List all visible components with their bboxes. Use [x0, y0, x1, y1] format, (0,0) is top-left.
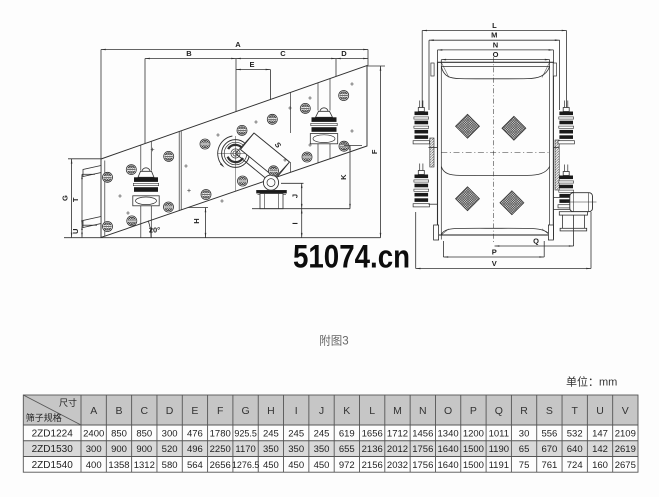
- svg-text:147: 147: [592, 429, 608, 440]
- svg-text:972: 972: [339, 460, 355, 471]
- svg-text:450: 450: [314, 460, 330, 471]
- svg-text:Q: Q: [495, 405, 503, 417]
- svg-text:G: G: [242, 405, 250, 417]
- svg-text:M: M: [491, 31, 497, 40]
- svg-text:350: 350: [314, 444, 330, 455]
- svg-text:925.5: 925.5: [234, 429, 257, 439]
- svg-text:450: 450: [263, 460, 279, 471]
- svg-text:1190: 1190: [489, 444, 509, 455]
- svg-text:V: V: [492, 259, 497, 268]
- svg-text:D: D: [166, 405, 174, 417]
- svg-text:筛子规格: 筛子规格: [26, 412, 62, 423]
- svg-text:J: J: [319, 405, 324, 417]
- svg-text:160: 160: [592, 460, 608, 471]
- svg-text:U: U: [596, 405, 604, 417]
- svg-text:1756: 1756: [412, 460, 433, 471]
- svg-text:850: 850: [111, 429, 127, 440]
- svg-text:F: F: [217, 405, 223, 417]
- svg-text:1276.5: 1276.5: [232, 460, 260, 470]
- svg-text:2136: 2136: [362, 444, 383, 455]
- svg-text:B: B: [186, 49, 192, 58]
- svg-text:900: 900: [111, 444, 127, 455]
- svg-text:1640: 1640: [438, 444, 459, 455]
- svg-text:M: M: [393, 405, 402, 417]
- svg-text:H: H: [267, 405, 275, 417]
- svg-text:1500: 1500: [463, 460, 484, 471]
- svg-text:T: T: [71, 197, 80, 202]
- svg-text:附图3: 附图3: [319, 334, 348, 348]
- svg-text:A: A: [235, 40, 241, 49]
- svg-text:670: 670: [541, 444, 557, 455]
- svg-text:1456: 1456: [412, 429, 433, 440]
- svg-text:单位：mm: 单位：mm: [566, 375, 617, 389]
- svg-text:142: 142: [592, 444, 608, 455]
- svg-text:E: E: [249, 60, 254, 69]
- svg-text:P: P: [492, 248, 497, 257]
- svg-text:245: 245: [288, 429, 304, 440]
- svg-text:C: C: [141, 405, 149, 417]
- svg-text:N: N: [419, 405, 427, 417]
- svg-text:20°: 20°: [149, 226, 160, 235]
- svg-text:51074.cn: 51074.cn: [293, 238, 410, 274]
- svg-text:2109: 2109: [615, 429, 636, 440]
- svg-text:1340: 1340: [438, 429, 459, 440]
- svg-text:75: 75: [519, 460, 530, 471]
- svg-text:1170: 1170: [235, 444, 255, 455]
- svg-text:R: R: [520, 405, 528, 417]
- svg-text:564: 564: [187, 460, 203, 471]
- svg-text:B: B: [115, 405, 122, 417]
- svg-text:245: 245: [314, 429, 330, 440]
- svg-text:1500: 1500: [463, 444, 484, 455]
- svg-text:2032: 2032: [387, 460, 408, 471]
- svg-text:1358: 1358: [108, 460, 129, 471]
- svg-text:245: 245: [263, 429, 279, 440]
- svg-text:2250: 2250: [210, 444, 231, 455]
- svg-text:尺寸: 尺寸: [59, 397, 77, 408]
- svg-text:1712: 1712: [387, 429, 408, 440]
- svg-text:400: 400: [86, 460, 102, 471]
- svg-text:850: 850: [136, 429, 152, 440]
- svg-text:496: 496: [187, 444, 203, 455]
- svg-text:1200: 1200: [463, 429, 484, 440]
- svg-text:619: 619: [339, 429, 355, 440]
- svg-text:T: T: [571, 405, 578, 417]
- svg-text:300: 300: [162, 429, 178, 440]
- svg-text:2012: 2012: [387, 444, 408, 455]
- svg-text:1756: 1756: [412, 444, 433, 455]
- svg-text:761: 761: [541, 460, 557, 471]
- svg-text:580: 580: [162, 460, 178, 471]
- svg-text:2400: 2400: [83, 429, 104, 440]
- svg-text:O: O: [444, 405, 452, 417]
- svg-text:2ZD1224: 2ZD1224: [32, 429, 74, 440]
- svg-text:V: V: [622, 405, 629, 417]
- svg-text:900: 900: [136, 444, 152, 455]
- svg-text:L: L: [369, 405, 375, 417]
- svg-text:350: 350: [288, 444, 304, 455]
- svg-text:N: N: [493, 40, 498, 49]
- svg-text:J: J: [290, 194, 299, 198]
- svg-text:E: E: [191, 405, 198, 417]
- svg-text:724: 724: [567, 460, 583, 471]
- svg-text:350: 350: [263, 444, 279, 455]
- svg-text:1640: 1640: [438, 460, 459, 471]
- svg-text:2619: 2619: [615, 444, 636, 455]
- svg-text:532: 532: [567, 429, 583, 440]
- svg-text:640: 640: [567, 444, 583, 455]
- svg-text:H: H: [192, 218, 201, 223]
- svg-text:520: 520: [162, 444, 178, 455]
- svg-text:Q: Q: [533, 237, 539, 246]
- svg-text:300: 300: [86, 444, 102, 455]
- svg-text:D: D: [341, 49, 347, 58]
- svg-text:476: 476: [187, 429, 203, 440]
- svg-text:U: U: [71, 229, 80, 234]
- svg-text:2ZD1540: 2ZD1540: [32, 460, 74, 471]
- svg-text:K: K: [343, 405, 350, 417]
- svg-text:2656: 2656: [210, 460, 231, 471]
- svg-text:2ZD1530: 2ZD1530: [32, 444, 74, 455]
- svg-text:2156: 2156: [362, 460, 383, 471]
- svg-text:K: K: [339, 174, 348, 180]
- svg-text:450: 450: [288, 460, 304, 471]
- svg-text:1312: 1312: [134, 460, 155, 471]
- svg-text:30: 30: [519, 429, 530, 440]
- svg-text:G: G: [61, 195, 70, 201]
- svg-text:655: 655: [339, 444, 355, 455]
- svg-text:556: 556: [541, 429, 557, 440]
- svg-text:F: F: [370, 149, 379, 154]
- svg-text:65: 65: [519, 444, 530, 455]
- svg-text:S: S: [546, 405, 553, 417]
- svg-text:2675: 2675: [615, 460, 636, 471]
- svg-text:1656: 1656: [362, 429, 383, 440]
- svg-text:C: C: [280, 49, 286, 58]
- svg-text:P: P: [470, 405, 477, 417]
- svg-text:A: A: [90, 405, 97, 417]
- svg-text:L: L: [492, 21, 497, 30]
- svg-text:1780: 1780: [210, 429, 231, 440]
- svg-text:1191: 1191: [489, 460, 509, 471]
- svg-text:I: I: [290, 222, 299, 224]
- svg-text:I: I: [295, 405, 298, 417]
- svg-text:1011: 1011: [489, 429, 509, 440]
